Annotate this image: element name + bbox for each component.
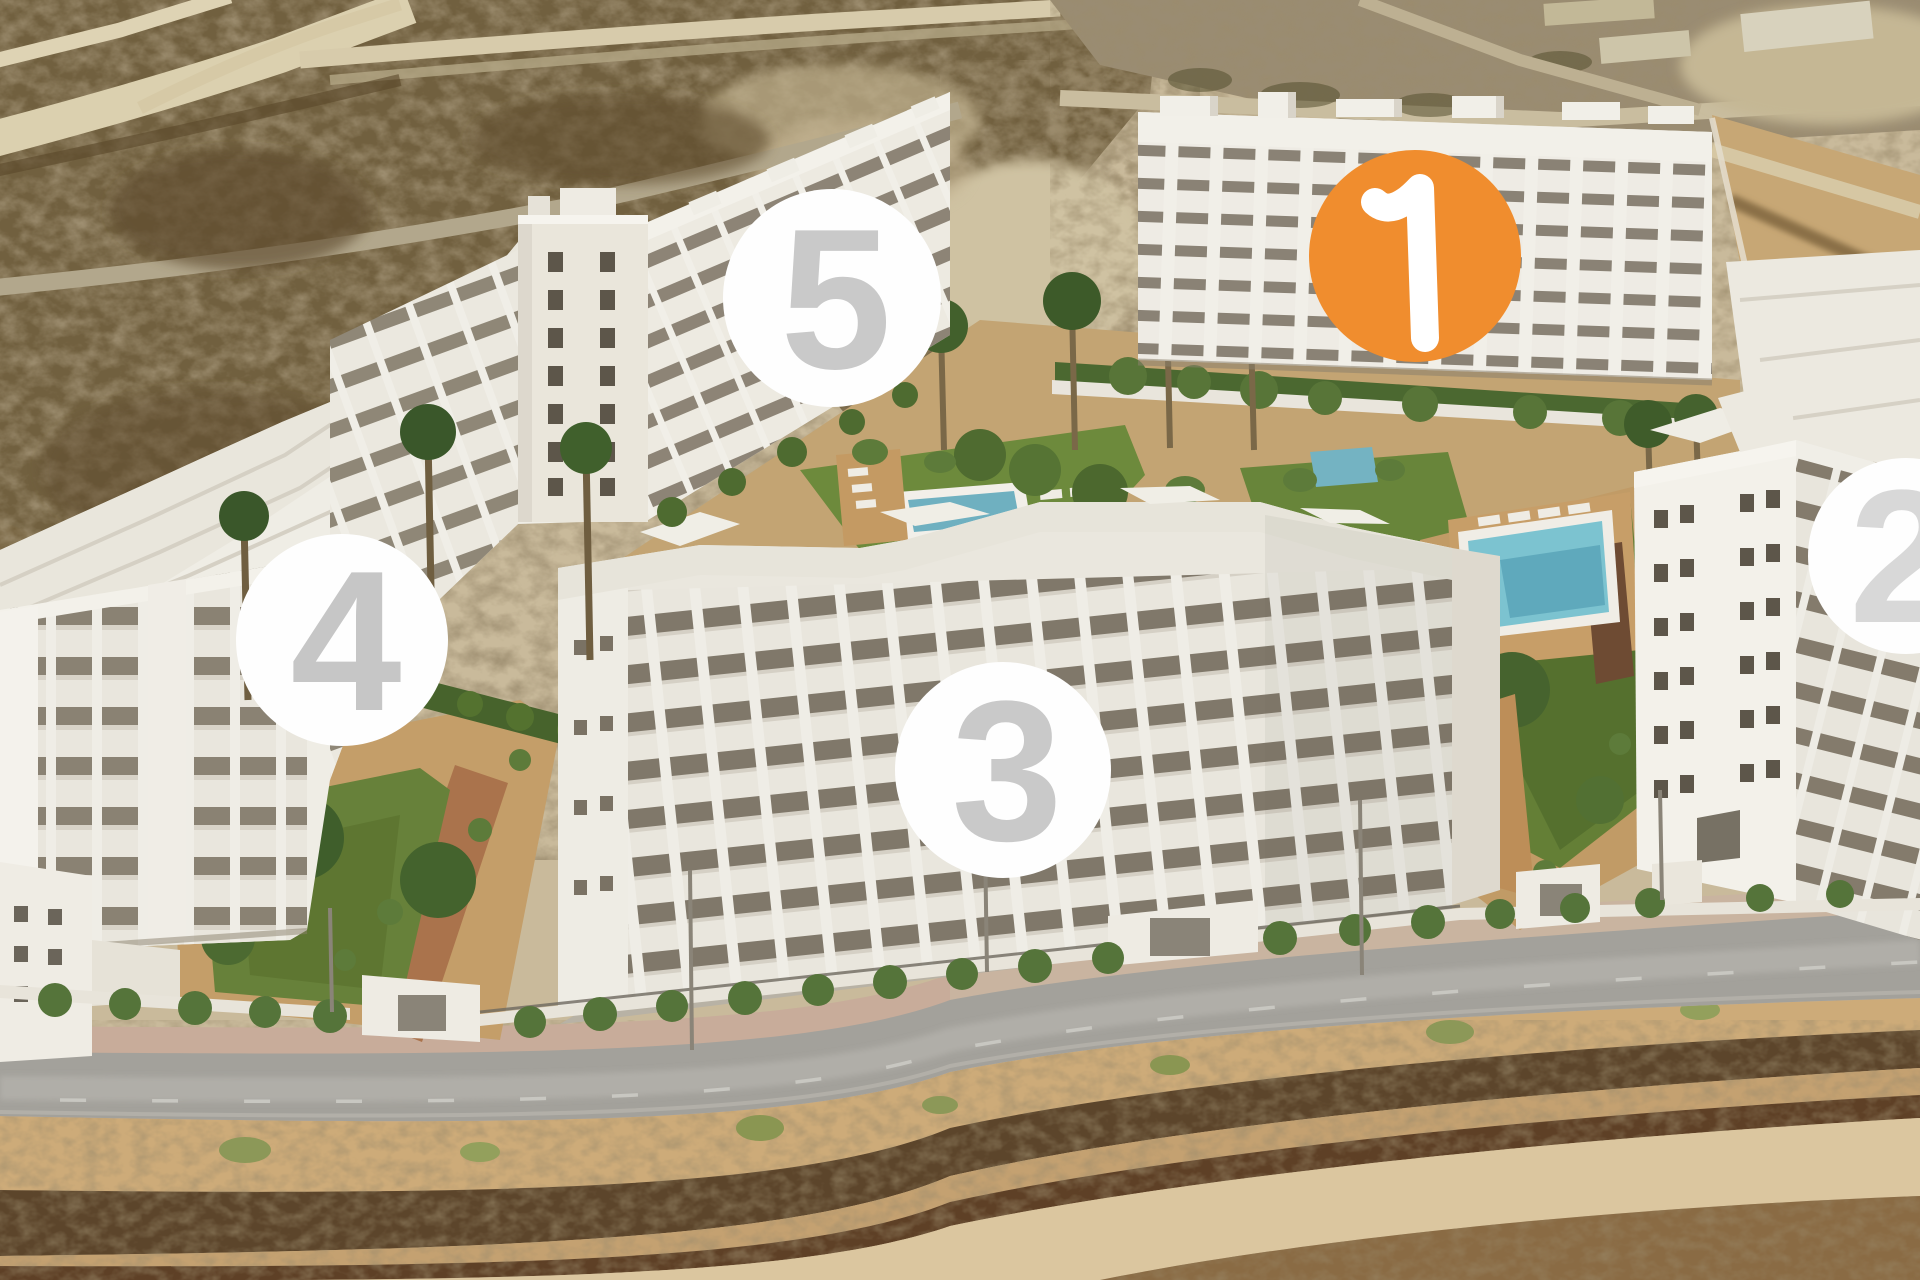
svg-text:3: 3 [951,660,1062,883]
svg-text:4: 4 [290,530,401,753]
svg-text:2: 2 [1849,451,1920,663]
svg-text:5: 5 [780,188,891,411]
